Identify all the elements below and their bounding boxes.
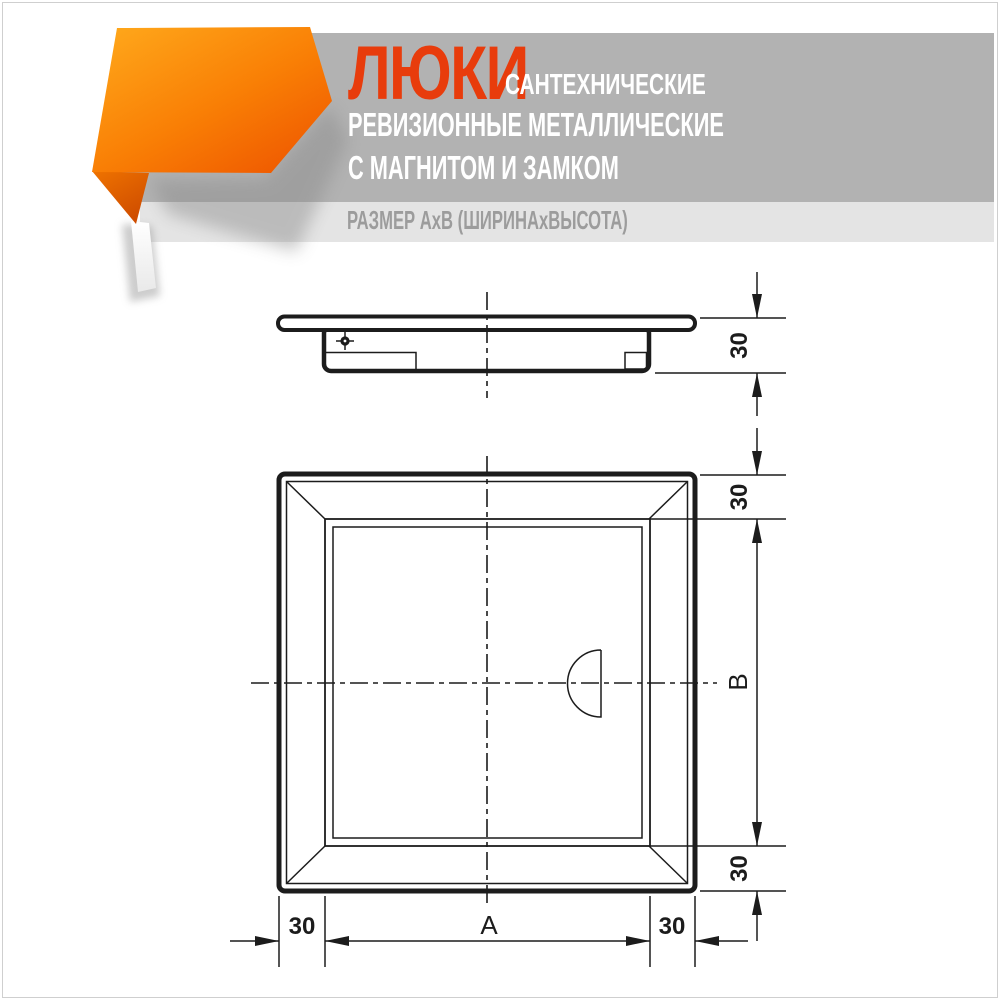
technical-drawing: 30 30 B 30 30 A 30 [0,0,1000,1000]
dim-overall-width: A [480,910,498,940]
front-view [251,456,717,907]
product-card: ЛЮКИ САНТЕХНИЧЕСКИЕ РЕВИЗИОННЫЕ МЕТАЛЛИЧ… [0,0,1000,1000]
dim-right-frame: 30 [659,913,686,940]
dim-overall-height: B [723,673,753,690]
dimensions-bottom: 30 A 30 [230,896,748,967]
side-view [278,292,695,398]
dim-side-depth: 30 [726,332,753,359]
dim-bottom-frame: 30 [726,855,753,882]
dim-left-frame: 30 [289,913,316,940]
dim-top-frame: 30 [726,484,753,511]
